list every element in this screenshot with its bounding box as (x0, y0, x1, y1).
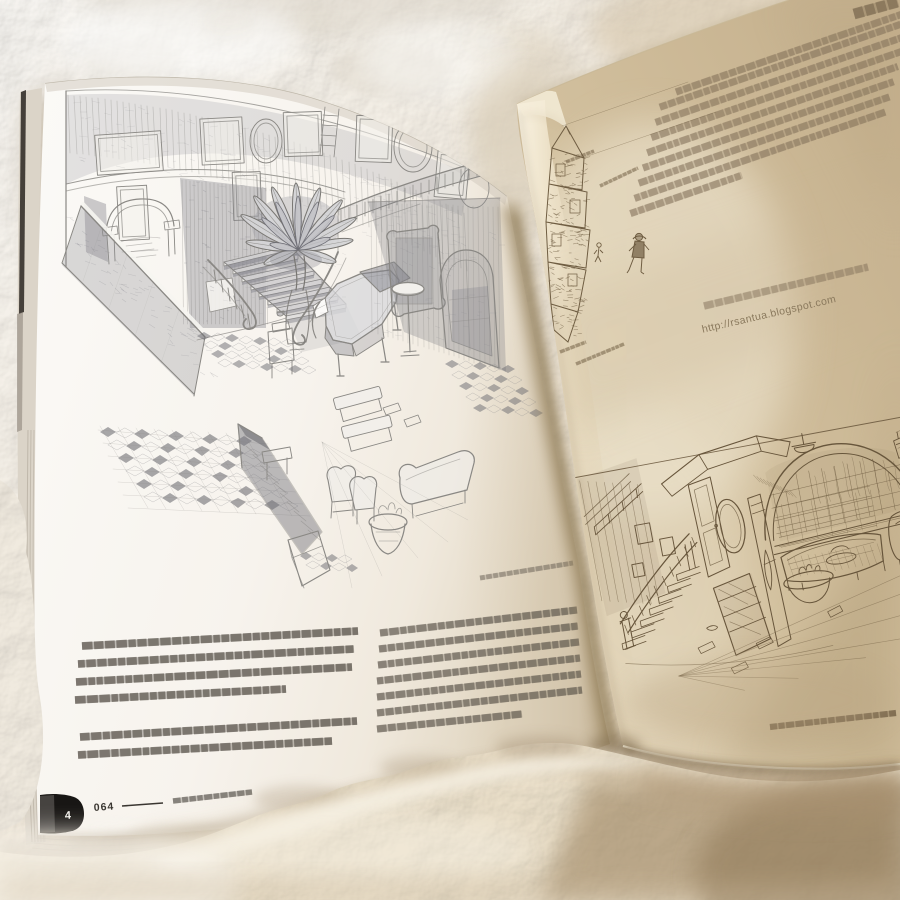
svg-text:064: 064 (93, 801, 114, 814)
